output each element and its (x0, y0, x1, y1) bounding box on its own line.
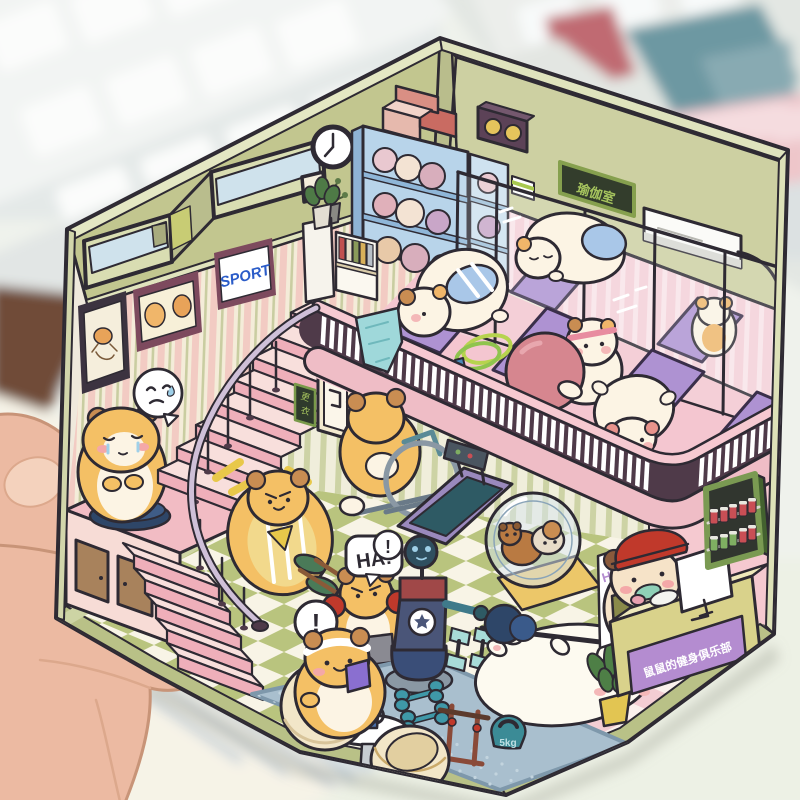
svg-text:5kg: 5kg (499, 738, 516, 749)
svg-text:!: ! (385, 537, 391, 557)
